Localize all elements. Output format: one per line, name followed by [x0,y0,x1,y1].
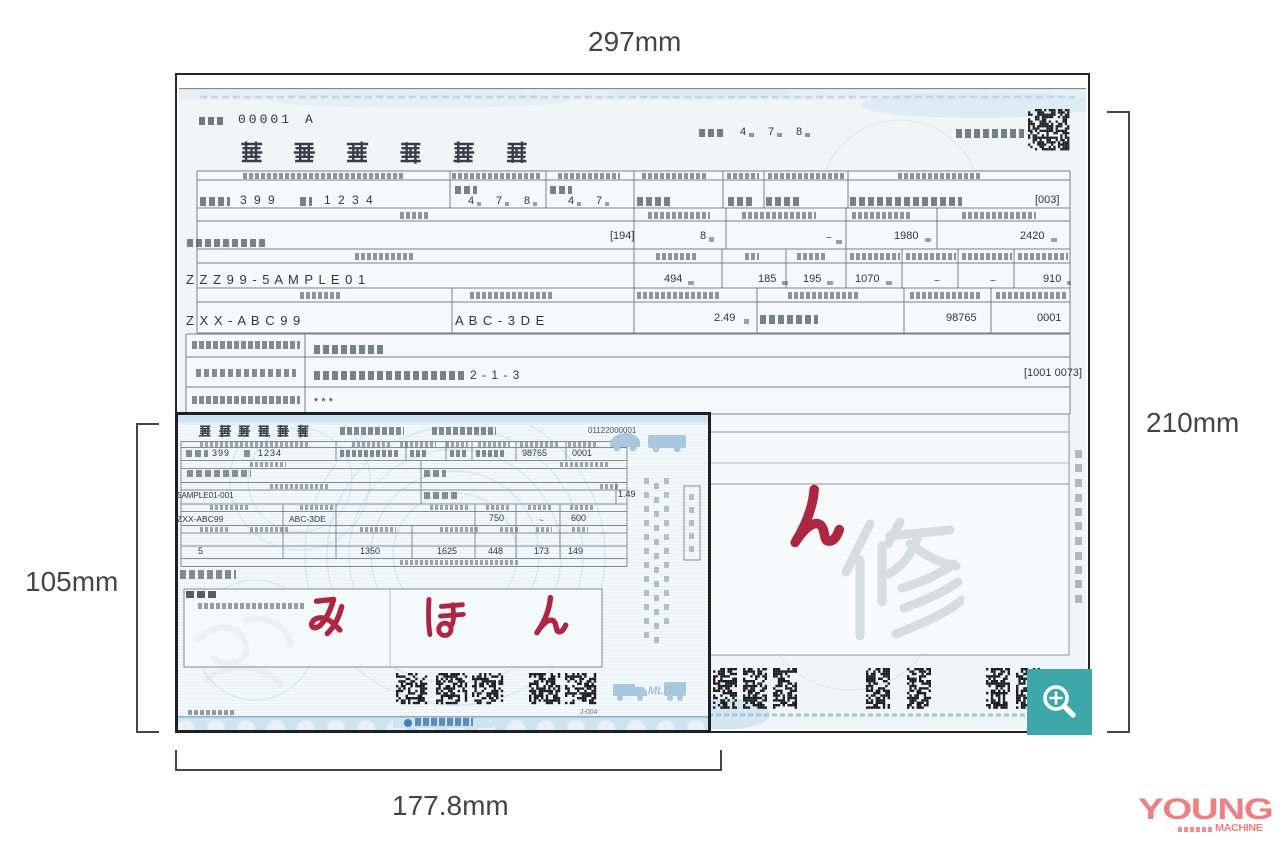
svg-text:MLIT: MLIT [648,685,675,697]
